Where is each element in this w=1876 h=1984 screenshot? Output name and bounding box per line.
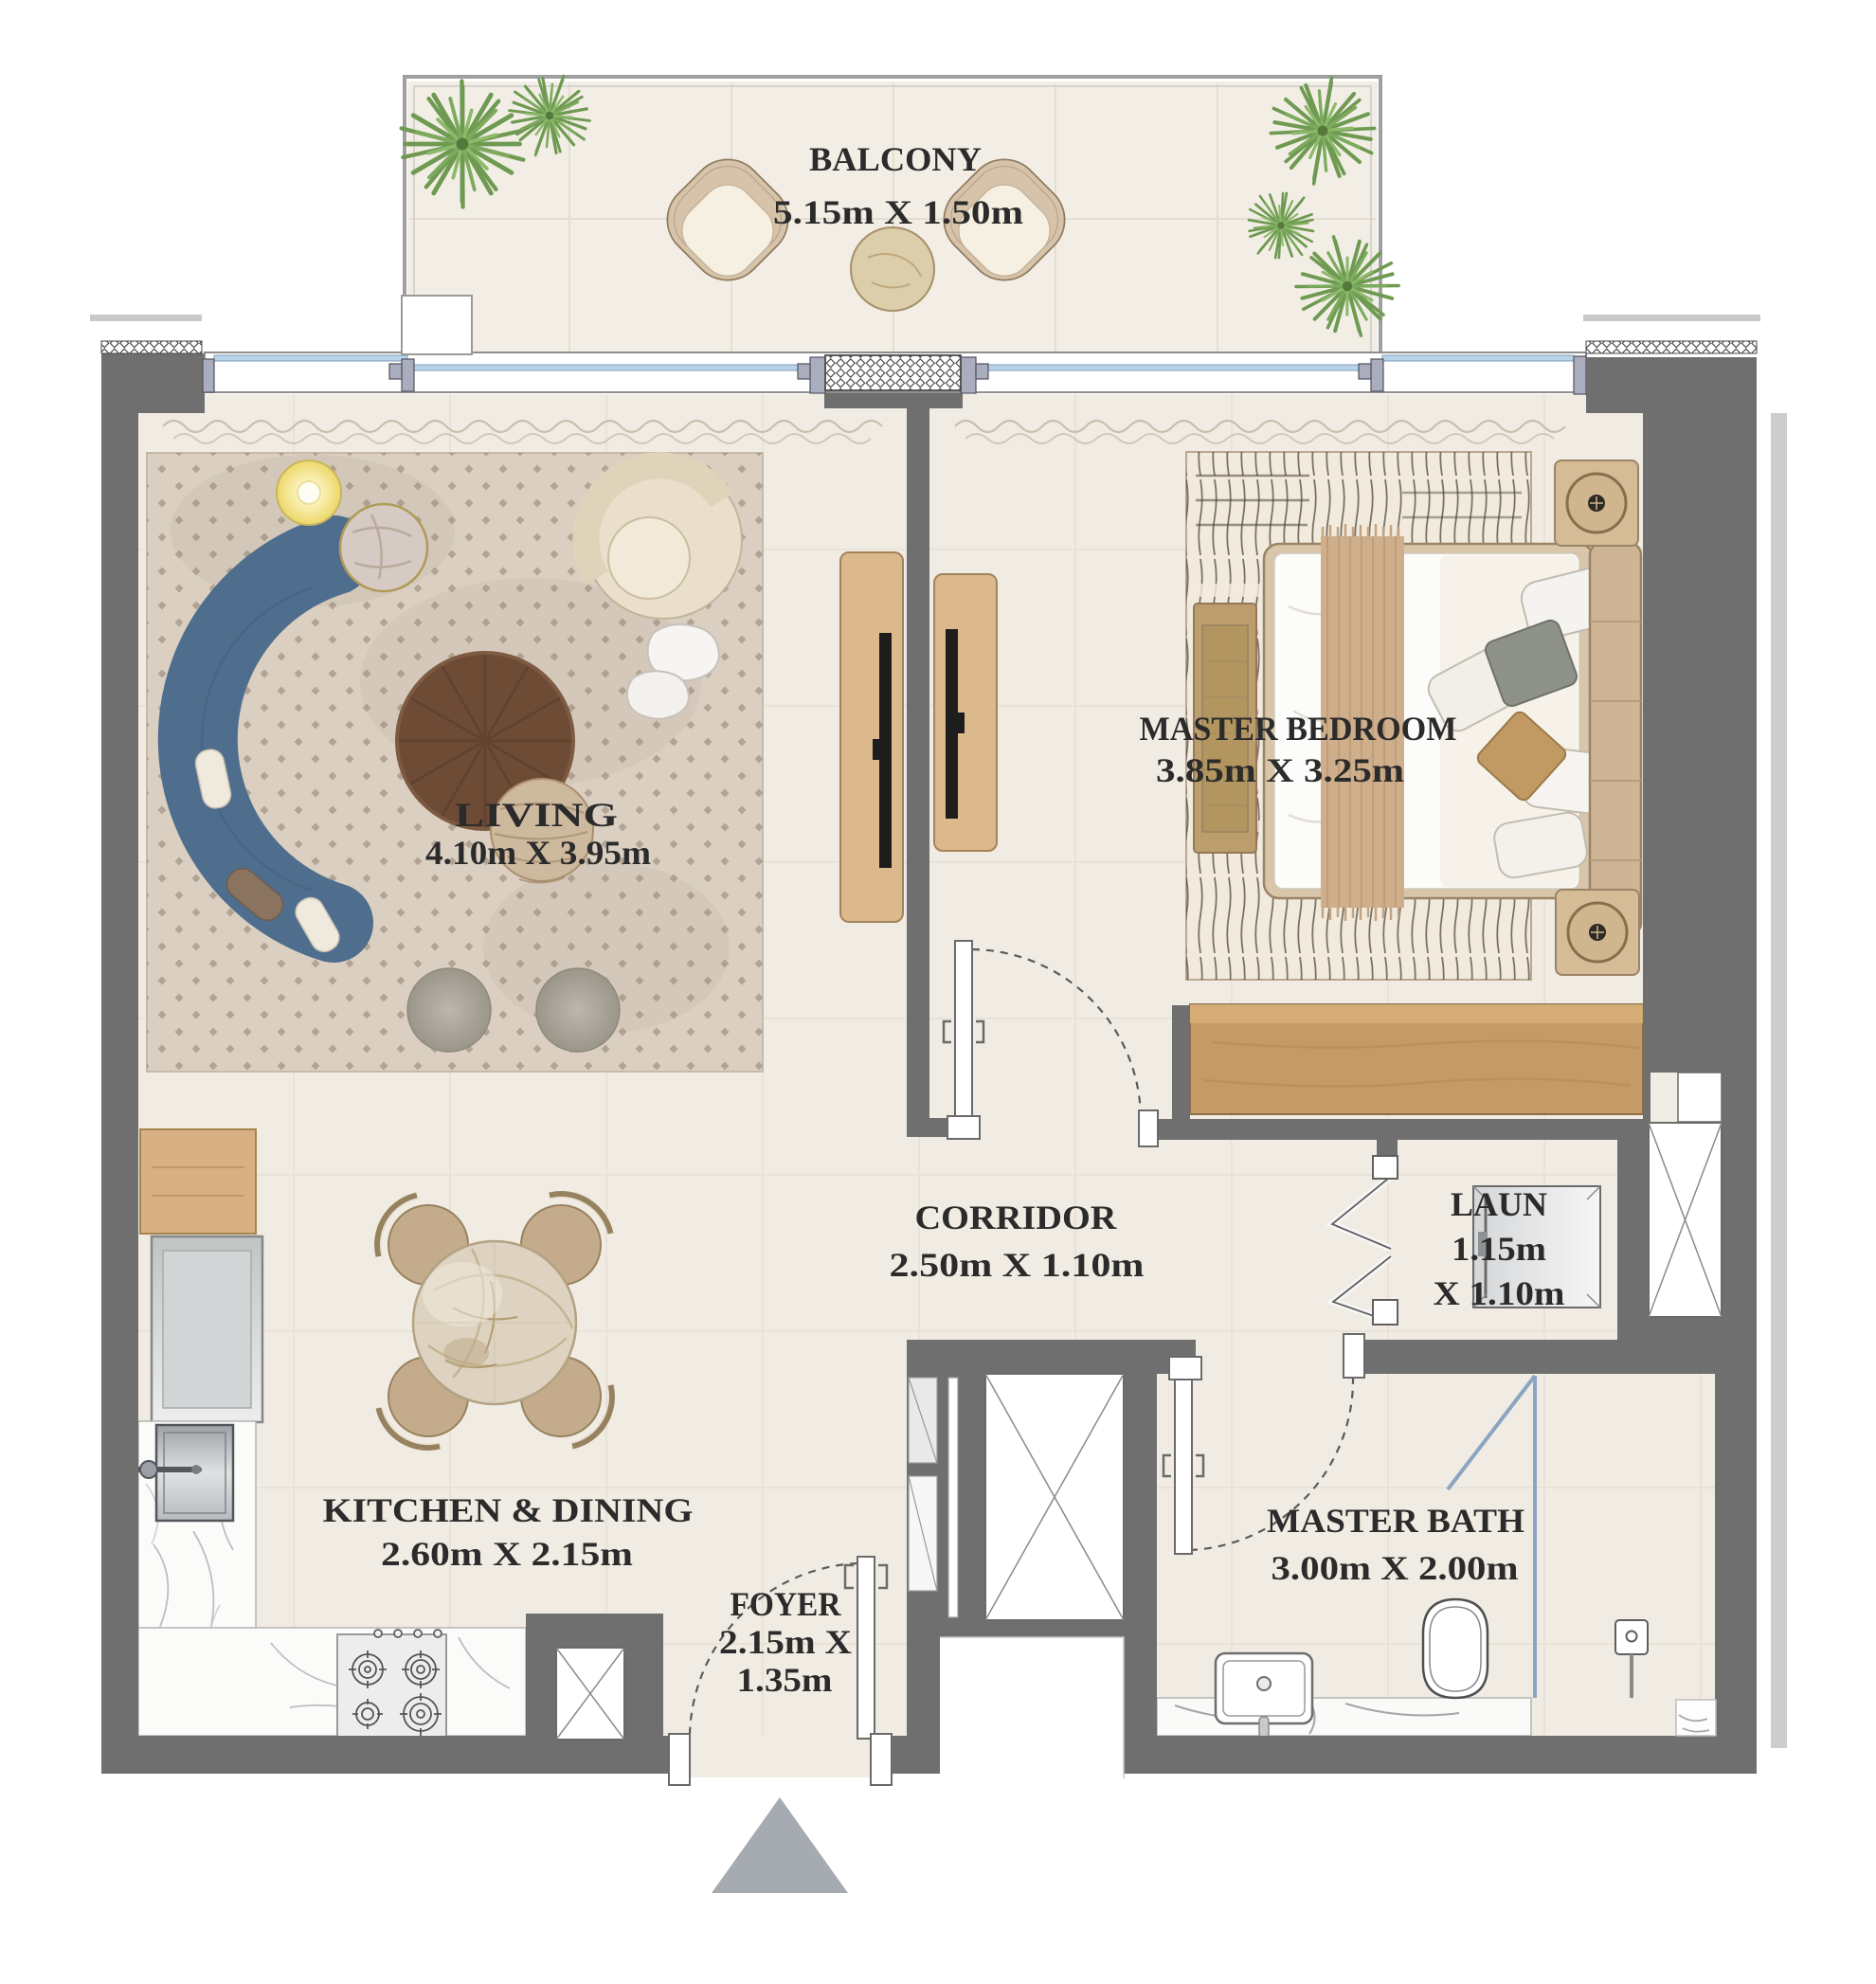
svg-text:LAUN: LAUN	[1451, 1185, 1547, 1223]
svg-text:2.60m X 2.15m: 2.60m X 2.15m	[381, 1535, 633, 1573]
svg-text:2.15m X: 2.15m X	[719, 1623, 852, 1661]
svg-text:4.10m X 3.95m: 4.10m X 3.95m	[425, 834, 651, 872]
svg-text:3.85m X 3.25m: 3.85m X 3.25m	[1156, 751, 1404, 789]
svg-text:X 1.10m: X 1.10m	[1434, 1274, 1565, 1312]
svg-text:CORRIDOR: CORRIDOR	[915, 1199, 1118, 1236]
svg-text:1.35m: 1.35m	[737, 1661, 833, 1699]
svg-text:KITCHEN & DINING: KITCHEN & DINING	[323, 1491, 694, 1529]
svg-text:1.15m: 1.15m	[1452, 1230, 1546, 1268]
svg-text:MASTER BEDROOM: MASTER BEDROOM	[1140, 710, 1457, 748]
svg-text:LIVING: LIVING	[455, 796, 618, 834]
svg-text:2.50m X 1.10m: 2.50m X 1.10m	[890, 1246, 1145, 1284]
svg-text:5.15m X 1.50m: 5.15m X 1.50m	[773, 193, 1023, 231]
svg-text:BALCONY: BALCONY	[809, 140, 982, 178]
svg-text:FOYER: FOYER	[731, 1585, 842, 1623]
svg-text:3.00m X 2.00m: 3.00m X 2.00m	[1272, 1549, 1519, 1587]
svg-text:MASTER BATH: MASTER BATH	[1267, 1502, 1524, 1540]
